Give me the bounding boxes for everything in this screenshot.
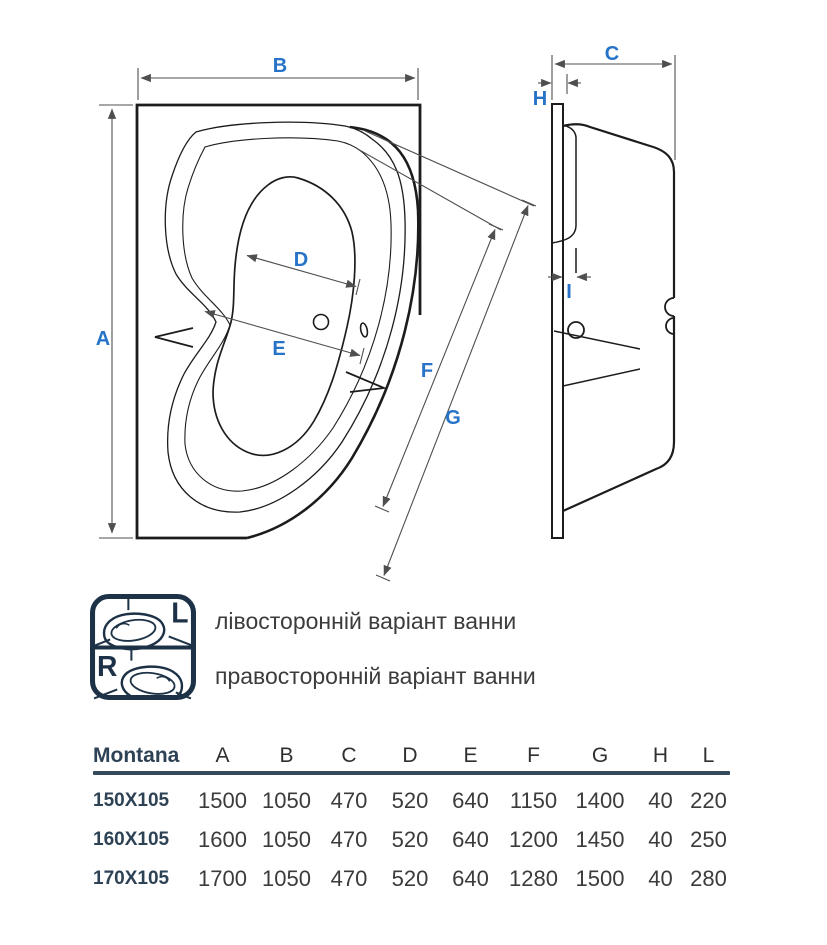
- variant-letter-r: R: [97, 650, 117, 682]
- table-cell: 250: [687, 827, 730, 853]
- table-cell: 1400: [566, 788, 634, 814]
- table-cell: 1050: [255, 788, 318, 814]
- table-cell: 520: [380, 827, 440, 853]
- table-column-header: G: [566, 744, 634, 768]
- spec-sheet-page: B A D E F G: [0, 0, 827, 945]
- table-cell: 1500: [566, 866, 634, 892]
- table-row-label: 160X105: [93, 829, 190, 851]
- dim-label-f: F: [421, 360, 433, 382]
- table-cell: 520: [380, 866, 440, 892]
- table-cell: 1050: [255, 827, 318, 853]
- table-cell: 470: [318, 827, 380, 853]
- table-cell: 640: [440, 788, 501, 814]
- table-column-header: A: [190, 744, 255, 768]
- table-cell: 640: [440, 827, 501, 853]
- top-view-drawing: [137, 105, 420, 538]
- tub-profile: [563, 124, 674, 511]
- dim-label-d: D: [294, 249, 308, 271]
- table-title: Montana: [93, 744, 190, 768]
- dim-a: [99, 105, 133, 538]
- tub-front-edge: [247, 127, 418, 538]
- table-cell: 40: [634, 866, 687, 892]
- dim-label-h: H: [533, 88, 547, 110]
- table-column-header: B: [255, 744, 318, 768]
- dim-label-a: A: [96, 328, 110, 350]
- table-cell: 40: [634, 827, 687, 853]
- table-cell: 1700: [190, 866, 255, 892]
- overflow-fitting: [359, 322, 368, 337]
- table-cell: 40: [634, 788, 687, 814]
- table-cell: 470: [318, 866, 380, 892]
- dim-g: [365, 131, 536, 581]
- dim-label-b: B: [273, 55, 287, 77]
- table-column-header: H: [634, 744, 687, 768]
- variant-letter-l: L: [171, 596, 188, 628]
- table-cell: 520: [380, 788, 440, 814]
- table-row-label: 170X105: [93, 868, 190, 890]
- table-cell: 220: [687, 788, 730, 814]
- seat-lines: [554, 331, 640, 386]
- table-row: 170X105 1700 1050 470 520 640 1280 1500 …: [93, 859, 730, 898]
- right-variant-text: правосторонній варіант ванни: [215, 663, 635, 693]
- table-body: 150X105 1500 1050 470 520 640 1150 1400 …: [93, 775, 730, 898]
- table-cell: 1150: [501, 788, 566, 814]
- tub-bowl: [213, 177, 355, 456]
- table-column-header: L: [687, 744, 730, 768]
- wall-panel: [552, 104, 563, 538]
- table-column-header: E: [440, 744, 501, 768]
- top-view-dimensions: [99, 68, 536, 581]
- dim-label-g: G: [445, 407, 461, 429]
- table-cell: 470: [318, 788, 380, 814]
- dim-c: [552, 55, 675, 160]
- dimensions-table: Montana A B C D E F G H L 150X105 1500 1…: [93, 744, 730, 898]
- dim-label-c: C: [605, 43, 619, 65]
- jet-bumps: [665, 298, 674, 334]
- side-view-drawing: [552, 104, 674, 538]
- orientation-variants-icon: L R: [90, 594, 196, 700]
- side-view-dimensions: [538, 55, 675, 277]
- bathtub-technical-drawing: B A D E F G: [0, 0, 827, 600]
- table-cell: 1050: [255, 866, 318, 892]
- table-column-header: D: [380, 744, 440, 768]
- left-variant-text: лівосторонній варіант ванни: [215, 608, 635, 638]
- left-cusp-detail: [155, 328, 193, 347]
- table-cell: 280: [687, 866, 730, 892]
- table-cell: 1280: [501, 866, 566, 892]
- table-row-label: 150X105: [93, 790, 190, 812]
- drain-hole: [314, 315, 329, 330]
- tub-outer-rim: [165, 122, 405, 512]
- table-cell: 1600: [190, 827, 255, 853]
- table-column-header: F: [501, 744, 566, 768]
- table-column-header: C: [318, 744, 380, 768]
- dim-label-e: E: [272, 338, 285, 360]
- right-cusp-detail: [346, 372, 384, 392]
- table-row: 160X105 1600 1050 470 520 640 1200 1450 …: [93, 820, 730, 859]
- table-header-row: Montana A B C D E F G H L: [93, 744, 730, 768]
- table-row: 150X105 1500 1050 470 520 640 1150 1400 …: [93, 781, 730, 820]
- table-cell: 1200: [501, 827, 566, 853]
- dim-label-i: I: [566, 281, 572, 303]
- table-cell: 1500: [190, 788, 255, 814]
- table-cell: 640: [440, 866, 501, 892]
- table-cell: 1450: [566, 827, 634, 853]
